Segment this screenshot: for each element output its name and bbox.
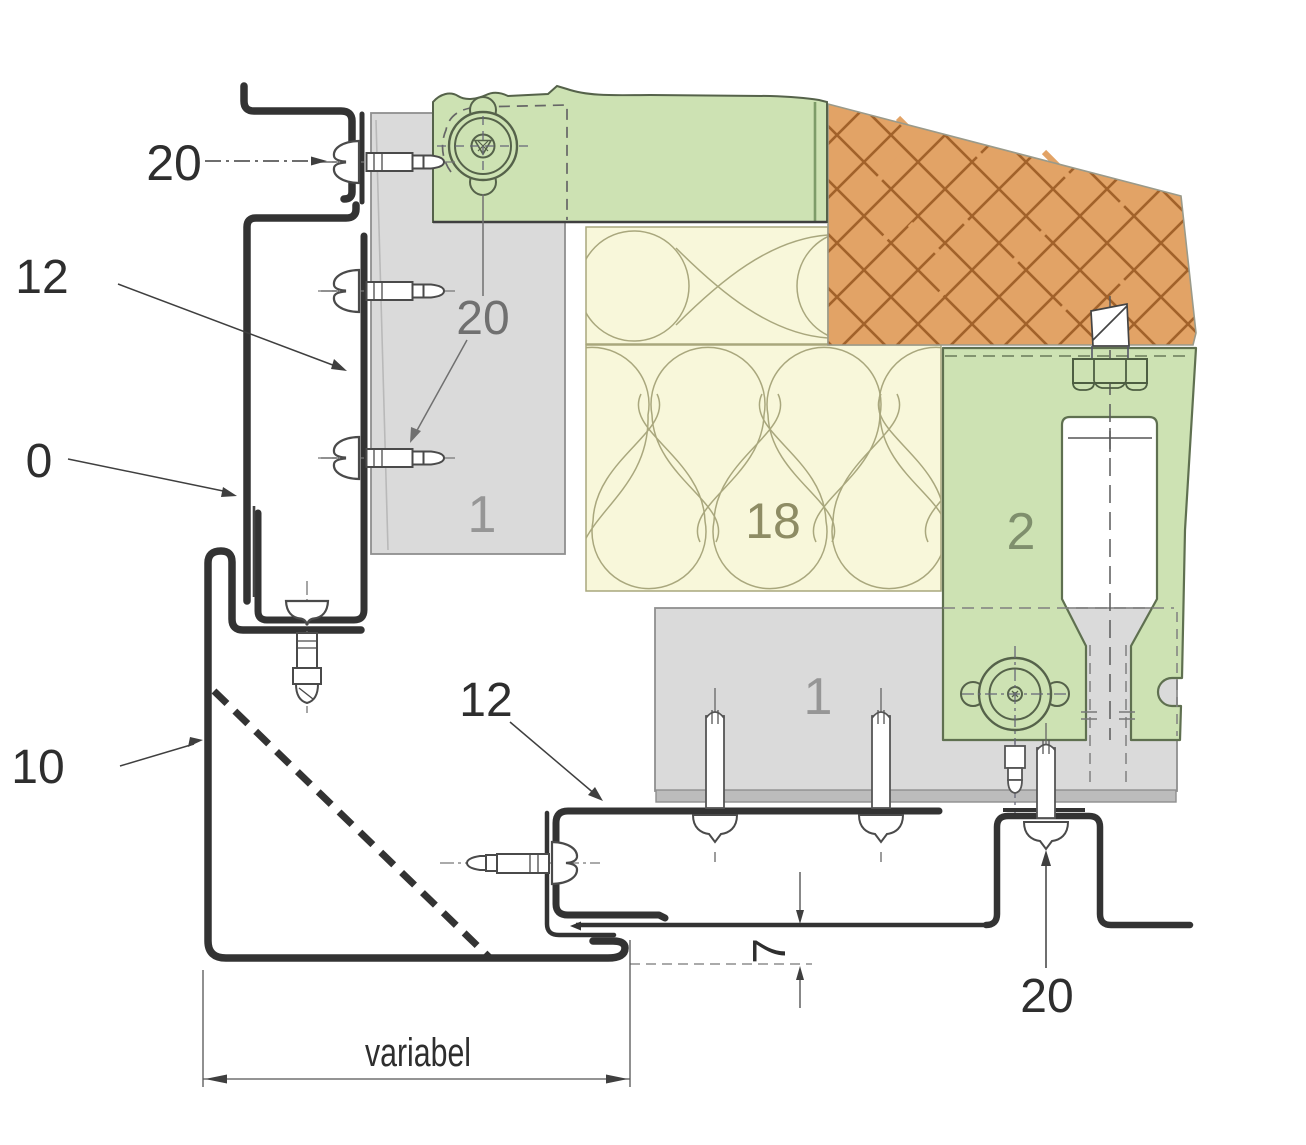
svg-text:0: 0 xyxy=(26,435,53,488)
svg-text:20: 20 xyxy=(1020,970,1073,1023)
svg-text:1: 1 xyxy=(468,486,497,544)
svg-text:20: 20 xyxy=(456,292,509,345)
svg-text:2: 2 xyxy=(1007,503,1036,561)
svg-text:7: 7 xyxy=(743,938,795,964)
svg-text:10: 10 xyxy=(11,741,64,794)
svg-text:20: 20 xyxy=(146,135,202,191)
svg-text:18: 18 xyxy=(745,493,801,549)
svg-text:variabel: variabel xyxy=(365,1031,471,1075)
svg-text:12: 12 xyxy=(459,674,512,727)
svg-text:1: 1 xyxy=(804,668,833,726)
svg-text:12: 12 xyxy=(15,251,68,304)
